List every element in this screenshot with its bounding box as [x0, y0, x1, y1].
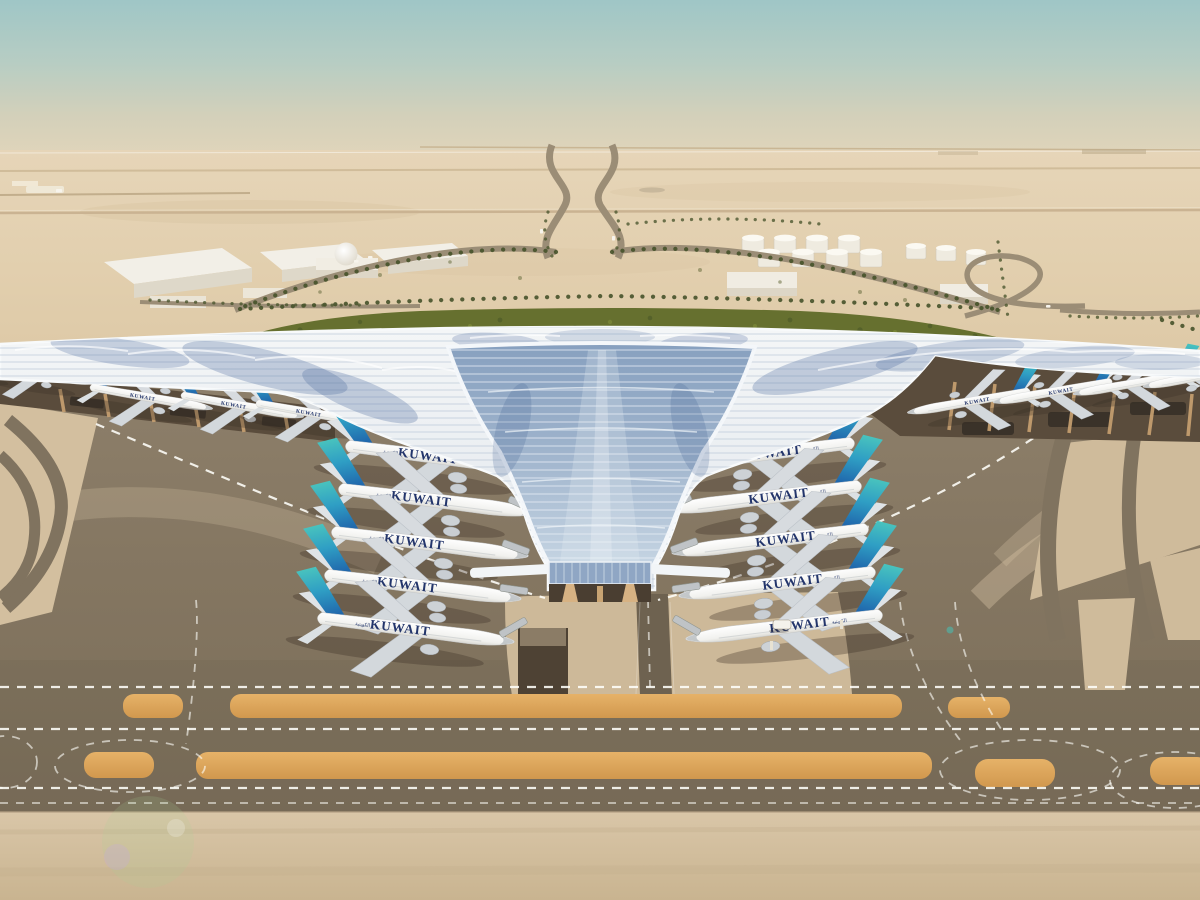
bollard — [840, 620, 843, 629]
terminal-front-road — [636, 594, 672, 696]
airport-rendering: KUWAIT KUWAIT KUWAIT KUWAIT KUWAIT الكوي… — [0, 0, 1200, 900]
entrance-column — [597, 586, 603, 602]
service-van — [773, 620, 791, 629]
bollard — [770, 641, 773, 650]
distant-aircraft — [639, 187, 665, 192]
scene-canvas: KUWAIT KUWAIT KUWAIT KUWAIT KUWAIT الكوي… — [0, 0, 1200, 900]
distant-structures — [1082, 149, 1146, 154]
